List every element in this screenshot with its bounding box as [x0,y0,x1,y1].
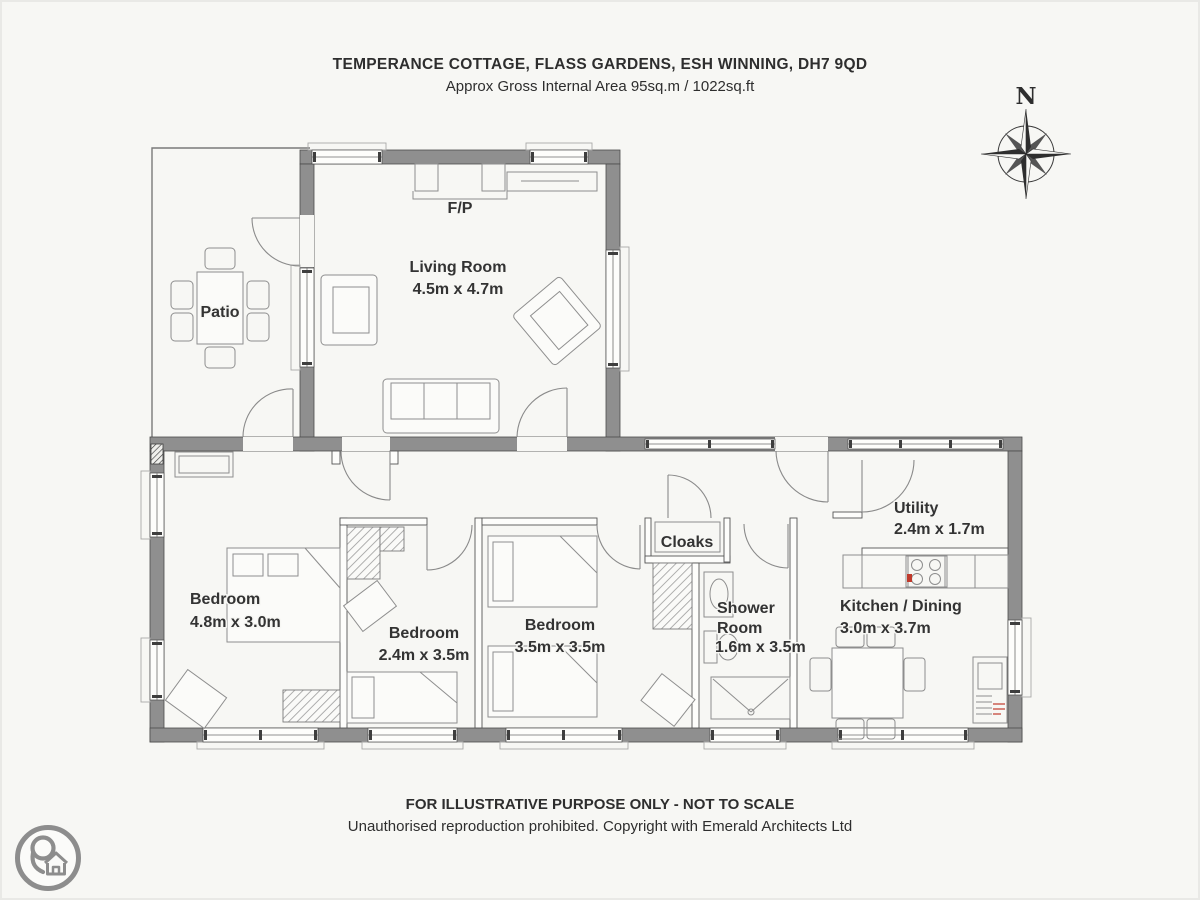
chair [641,674,695,727]
fireplace [413,164,507,199]
hob [906,556,947,587]
label-shower-room-2: Room [717,620,762,637]
label-utility: Utility [894,500,939,517]
shower-tray [711,677,790,719]
chair [344,581,397,632]
label-living-room: Living Room [410,259,507,276]
door-bedroom-3 [597,525,640,569]
door-hall [341,451,390,500]
hall-cupboard [175,452,233,477]
door-shower-room [744,524,788,568]
meter-marker [151,444,163,464]
label-bedroom-3: Bedroom [525,617,595,634]
fridge [973,657,1007,723]
door-rear-entrance [776,451,828,502]
label-bedroom-1: Bedroom [190,591,260,608]
single-bed [488,646,597,717]
floorplan-drawing: TEMPERANCE COTTAGE, FLASS GARDENS, ESH W… [0,0,1200,900]
chair [165,670,226,729]
door-living-room [517,388,567,437]
armchair [512,276,602,366]
armchair [321,275,377,345]
wardrobe [347,527,380,579]
dining-table-set [810,627,925,739]
kitchen-furniture [810,555,1008,739]
label-shower-room-1: Shower [717,600,775,617]
label-living-room-dims: 4.5m x 4.7m [413,281,504,298]
single-bed [488,536,597,607]
label-bedroom-1-dims: 4.8m x 3.0m [190,614,281,631]
kitchen-counter [843,555,1008,588]
wardrobe [653,563,692,629]
single-bed [347,672,457,723]
door-patio-living [252,218,300,266]
compass-north-label: N [1015,83,1036,110]
label-cloaks: Cloaks [661,534,714,551]
label-bedroom-2: Bedroom [389,625,459,642]
label-shower-room-dims: 1.6m x 3.5m [715,639,806,656]
sideboard [507,172,597,191]
wardrobe [283,690,340,722]
label-fireplace: F/P [448,200,473,217]
footer-disclaimer: FOR ILLUSTRATIVE PURPOSE ONLY - NOT TO S… [406,796,795,813]
floorplan-page: TEMPERANCE COTTAGE, FLASS GARDENS, ESH W… [0,0,1200,900]
label-utility-dims: 2.4m x 1.7m [894,521,985,538]
page-subtitle: Approx Gross Internal Area 95sq.m / 1022… [446,78,755,95]
sofa [383,379,499,433]
page-title: TEMPERANCE COTTAGE, FLASS GARDENS, ESH W… [333,56,868,73]
doors [243,218,914,570]
wardrobe [380,527,404,551]
label-patio: Patio [200,304,239,321]
label-kitchen-dining: Kitchen / Dining [840,598,962,615]
footer-copyright: Unauthorised reproduction prohibited. Co… [348,818,852,835]
compass-rose: N [981,83,1071,199]
label-bedroom-3-dims: 3.5m x 3.5m [515,639,606,656]
label-kitchen-dining-dims: 3.0m x 3.7m [840,620,931,637]
compass-cardinal-points [981,109,1071,199]
label-bedroom-2-dims: 2.4m x 3.5m [379,647,470,664]
door-patio-hall [243,389,293,437]
door-cloaks [668,475,711,518]
agency-logo [18,828,79,889]
door-bedroom-2 [427,525,472,570]
